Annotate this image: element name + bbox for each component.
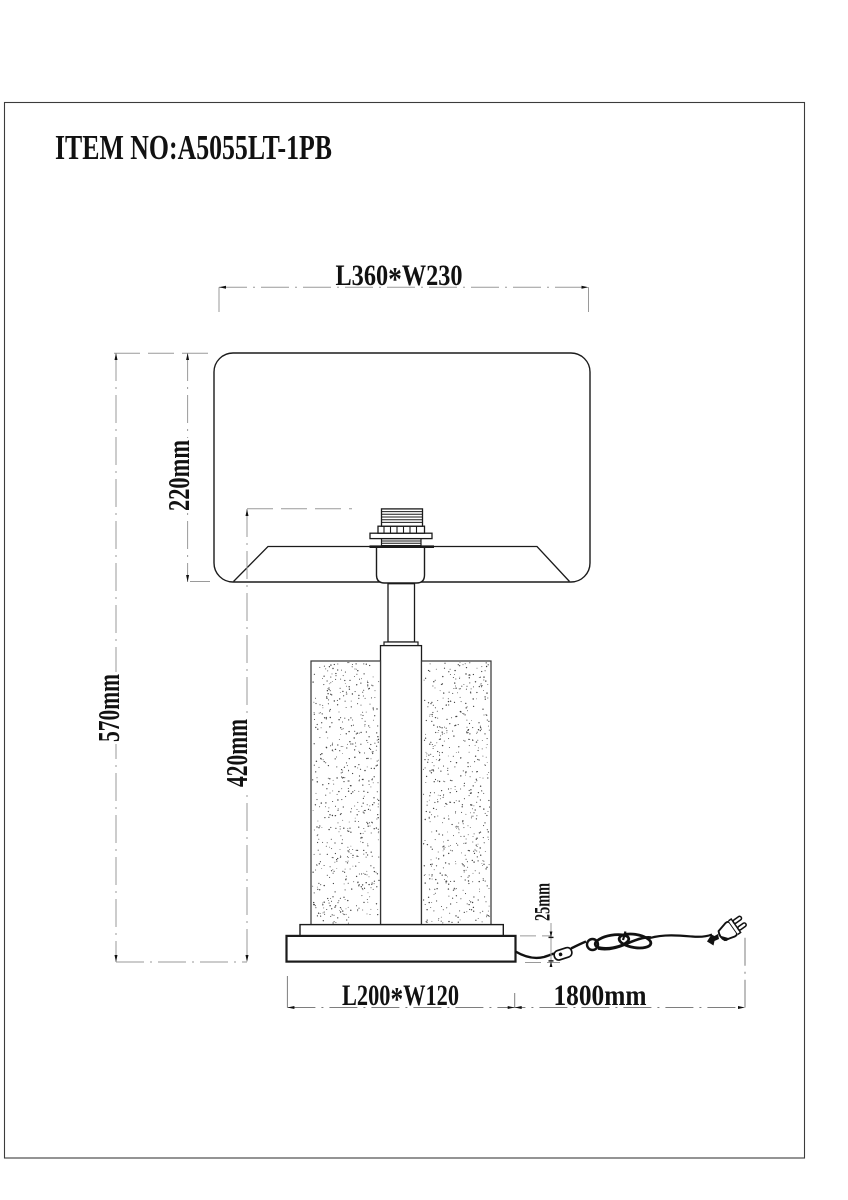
svg-text:25mm: 25mm xyxy=(530,883,555,921)
svg-text:1800mm: 1800mm xyxy=(554,979,647,1012)
svg-text:420mm: 420mm xyxy=(219,719,254,787)
svg-text:ITEM NO:A5055LT-1PB: ITEM NO:A5055LT-1PB xyxy=(55,128,332,167)
svg-text:220mm: 220mm xyxy=(161,440,196,511)
svg-text:570mm: 570mm xyxy=(91,674,126,742)
